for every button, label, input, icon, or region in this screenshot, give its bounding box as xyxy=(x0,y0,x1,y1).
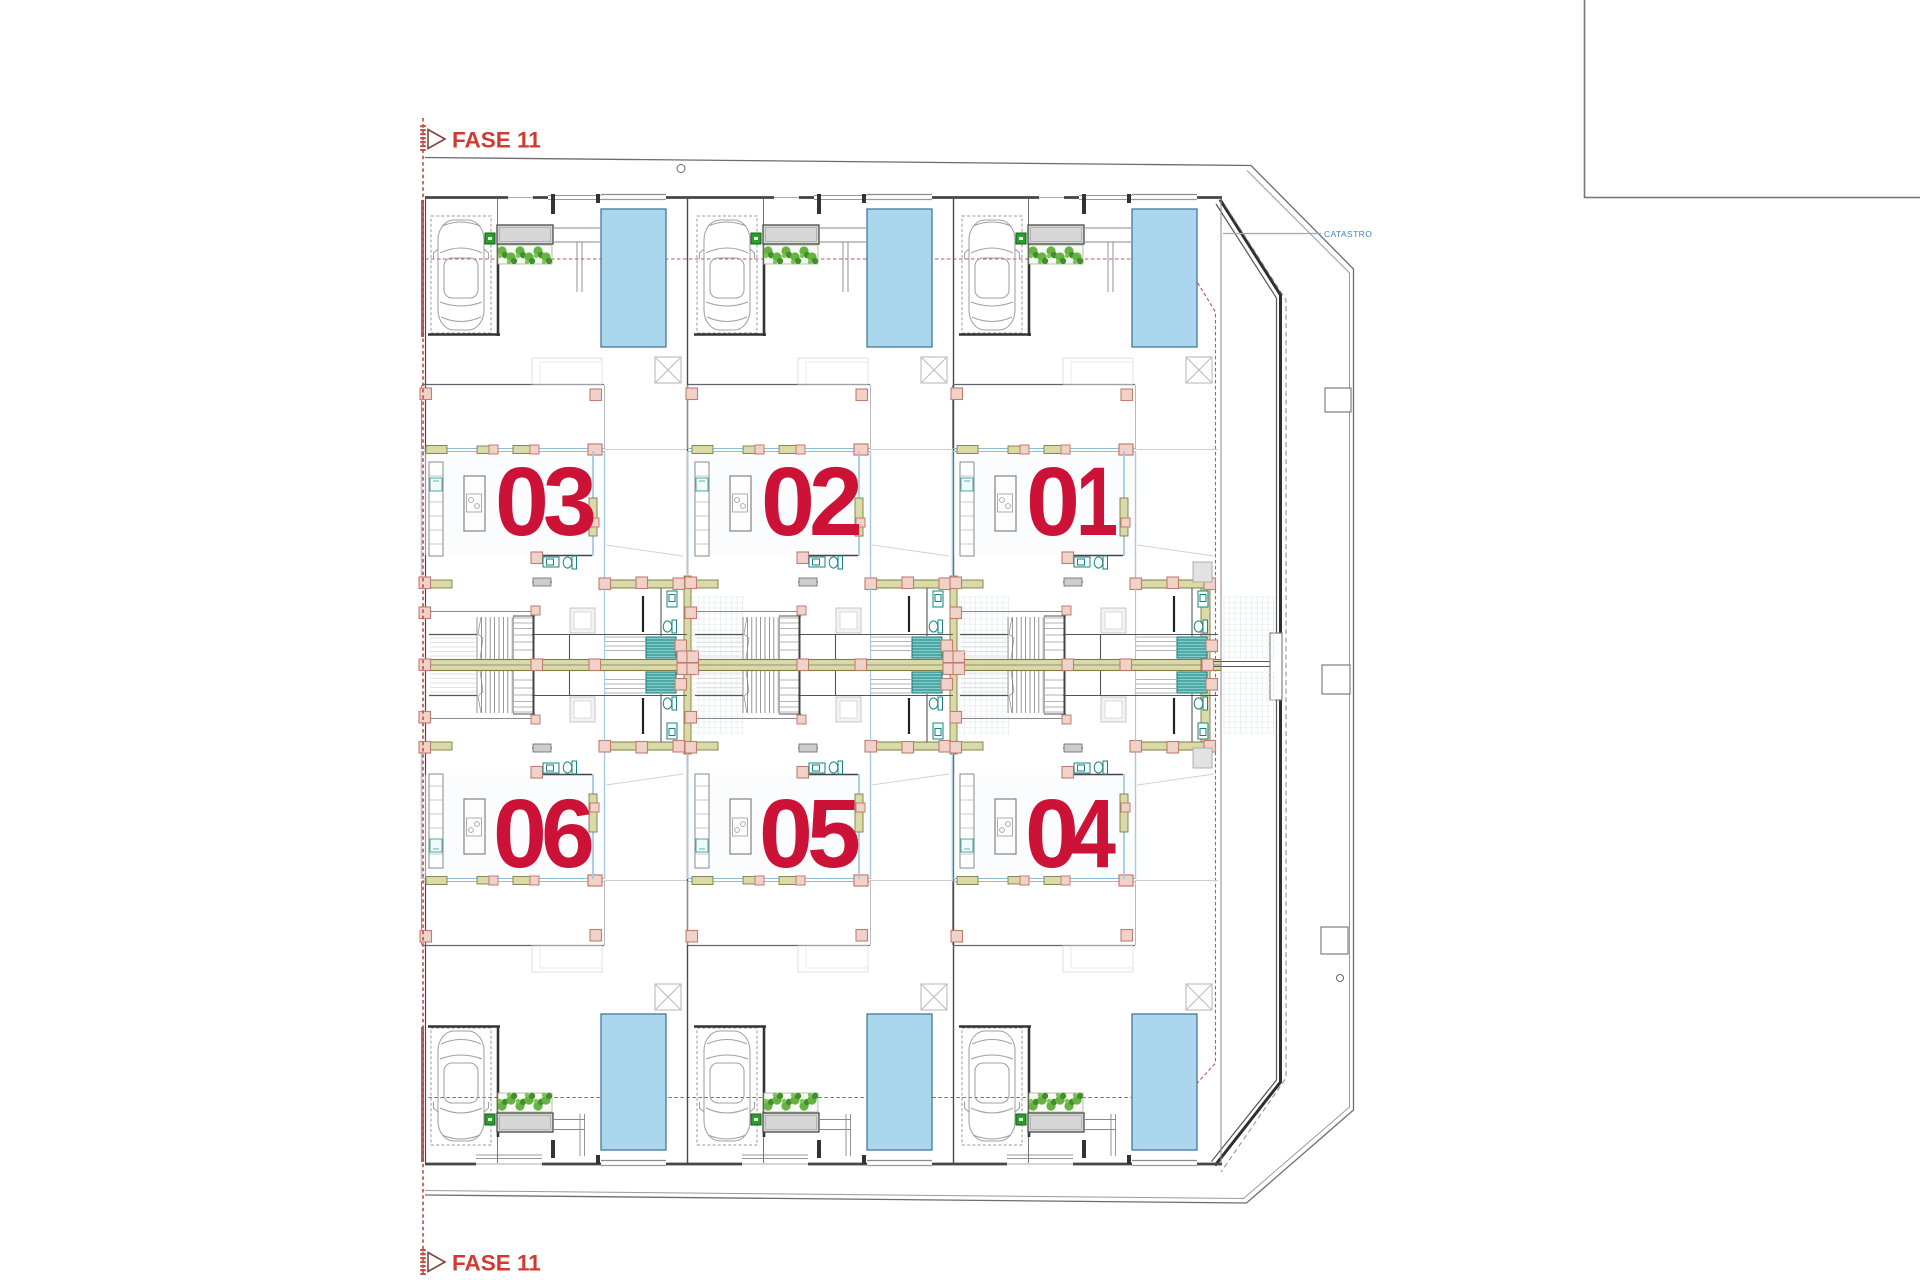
svg-text:FASE 11: FASE 11 xyxy=(452,1251,541,1276)
svg-text:1: 1 xyxy=(1076,448,1118,556)
svg-text:03: 03 xyxy=(495,447,594,556)
svg-text:0: 0 xyxy=(1026,447,1080,556)
svg-text:06: 06 xyxy=(493,779,592,888)
svg-text:02: 02 xyxy=(761,447,860,556)
svg-text:4: 4 xyxy=(1070,781,1116,889)
svg-text:FASE 11: FASE 11 xyxy=(452,128,541,153)
svg-text:05: 05 xyxy=(759,779,859,888)
svg-text:CATASTRO: CATASTRO xyxy=(1324,229,1372,239)
